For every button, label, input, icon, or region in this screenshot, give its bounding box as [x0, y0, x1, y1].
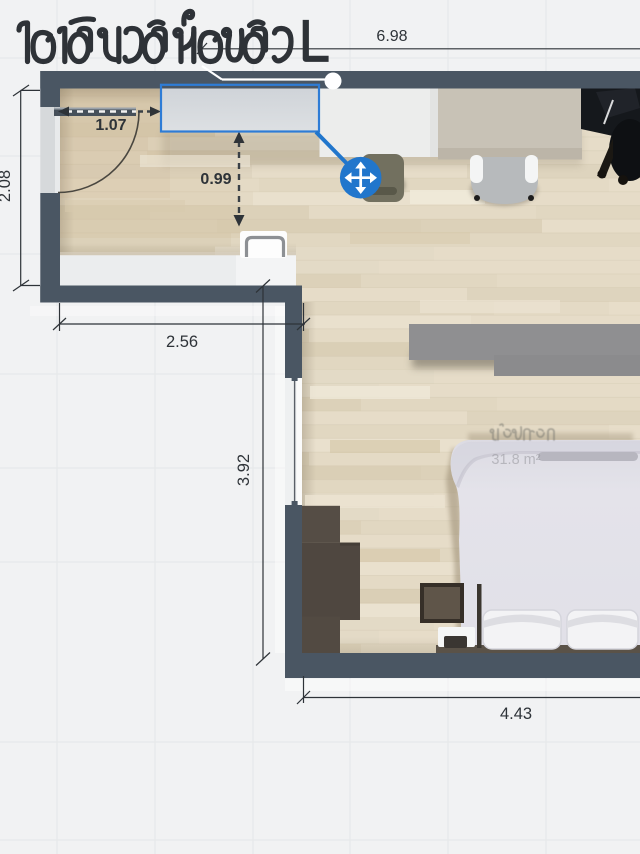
svg-text:0.99: 0.99 [200, 171, 231, 188]
svg-text:1.07: 1.07 [95, 117, 126, 134]
svg-text:2.08: 2.08 [0, 170, 14, 202]
svg-text:2.56: 2.56 [166, 333, 198, 351]
svg-text:31.8 m²: 31.8 m² [491, 452, 540, 468]
svg-text:3.92: 3.92 [235, 454, 253, 486]
svg-text:6.98: 6.98 [376, 28, 407, 45]
svg-text:4.43: 4.43 [500, 705, 532, 723]
